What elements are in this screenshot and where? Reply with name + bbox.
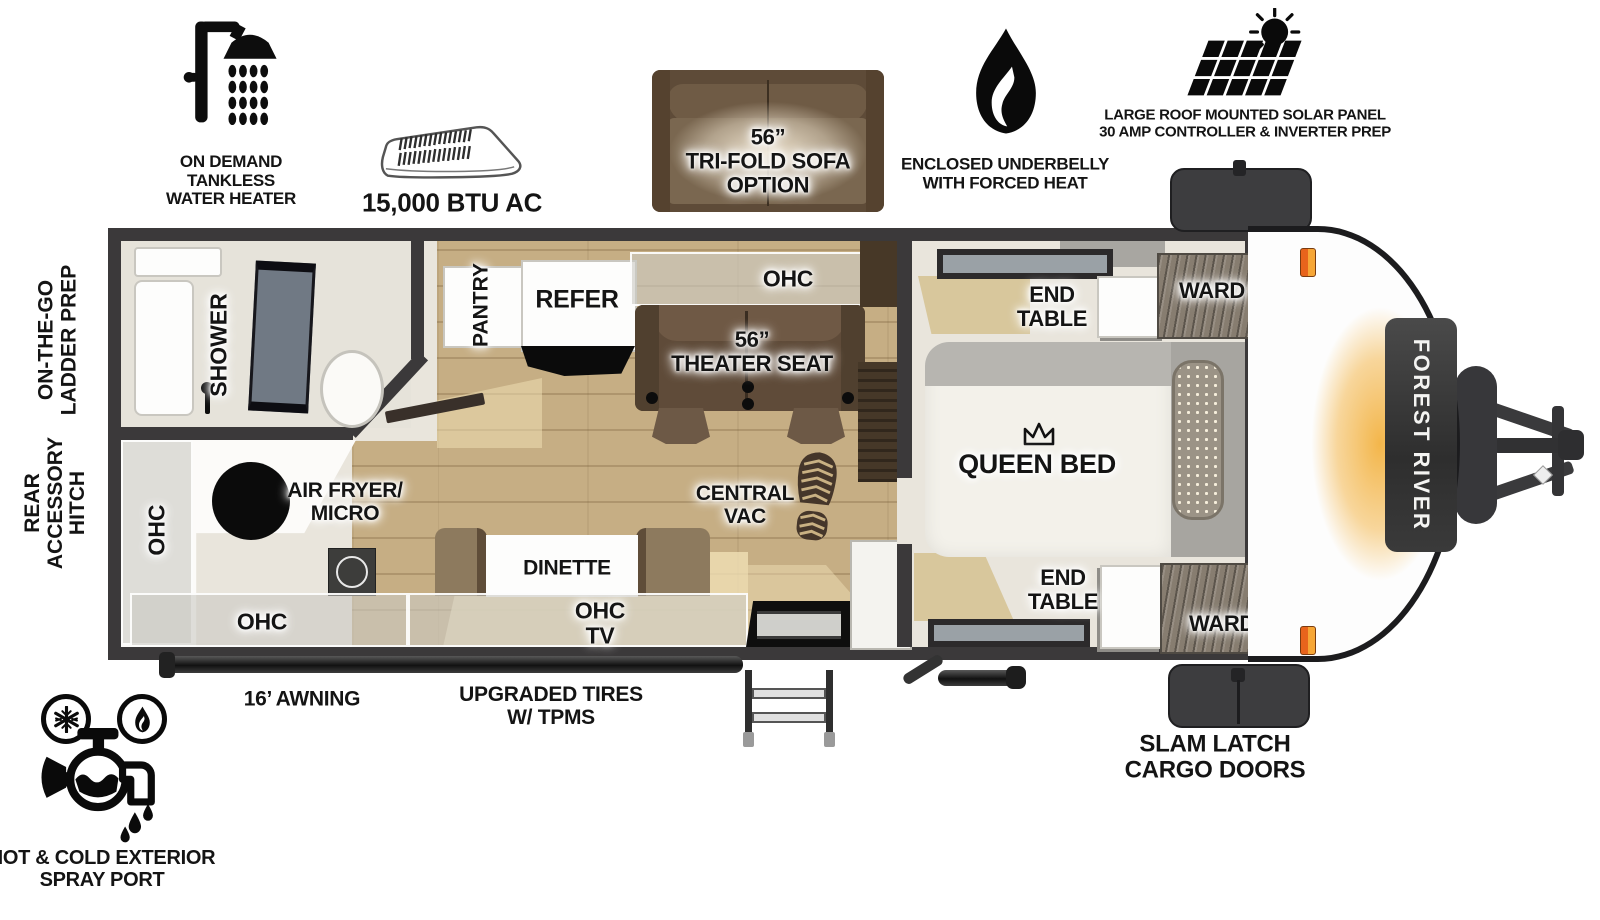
entry-steps <box>743 670 835 750</box>
bedroom-door-opening <box>897 478 912 544</box>
refer-label: REFER <box>535 286 618 314</box>
awning-label: 16’ AWNING <box>244 687 360 710</box>
ohc-left-label: OHC <box>145 504 170 555</box>
bedroom-wall <box>897 241 912 647</box>
bath-shelf <box>134 247 222 277</box>
cooktop-burner <box>336 556 368 588</box>
spray-port-label: HOT & COLD EXTERIOR SPRAY PORT <box>0 847 215 891</box>
bedroom-shelf-top <box>918 276 1030 334</box>
grab-rail-bar <box>938 670 1016 686</box>
bed-blanket <box>925 342 1171 386</box>
bath-vanity <box>134 280 194 416</box>
toilet <box>320 350 384 428</box>
ac-label: 15,000 BTU AC <box>362 189 542 218</box>
trifold-sofa-label: 56” TRI-FOLD SOFA OPTION <box>686 126 851 199</box>
theater-label: 56” THEATER SEAT <box>671 328 833 376</box>
dinette-label: DINETTE <box>523 556 611 579</box>
end-table-bottom-label: END TABLE <box>1028 566 1098 614</box>
ward-bottom <box>1160 563 1262 654</box>
bedroom-window-top <box>937 249 1113 279</box>
cargo-door-top-handle <box>1233 160 1246 176</box>
ohc-tv-label: OHC TV <box>575 599 625 650</box>
ohc-top-cabinet <box>630 252 888 306</box>
end-table-top <box>1097 276 1159 338</box>
dinette-bench-right <box>636 528 710 596</box>
dinette-bench-left <box>435 528 487 596</box>
cargo-doors-label: SLAM LATCH CARGO DOORS <box>1125 732 1306 785</box>
ward-bottom-label: WARD <box>1189 612 1255 636</box>
entry-inner-step <box>757 611 841 639</box>
underbelly-feature <box>963 25 1049 137</box>
water-heater-label: ON DEMAND TANKLESS WATER HEATER <box>166 153 296 209</box>
bedroom-window-bottom <box>928 619 1090 647</box>
bed-bolster <box>1172 360 1224 520</box>
ohc-top-label: OHC <box>763 266 813 291</box>
cargo-door-top <box>1170 168 1312 232</box>
forest-river-logo: FOREST RIVER <box>1409 339 1433 532</box>
hitch-jack-post <box>1455 366 1497 524</box>
ac-unit-icon <box>378 120 526 184</box>
tires-label: UPGRADED TIRES W/ TPMS <box>459 683 643 729</box>
bathroom-right-wall <box>411 241 424 359</box>
end-table-bottom <box>1100 565 1162 649</box>
awning-rail <box>163 656 743 673</box>
shower-icon <box>180 18 290 133</box>
pantry-label: PANTRY <box>471 263 494 347</box>
theater-cupholder-3 <box>742 398 754 410</box>
side-cabinet <box>858 362 900 482</box>
central-vac-label: CENTRAL VAC <box>696 482 794 528</box>
kitchen-sink <box>212 462 290 540</box>
bathroom-bottom-wall <box>121 427 353 440</box>
flame-icon <box>963 25 1049 137</box>
underbelly-label: ENCLOSED UNDERBELLY WITH FORCED HEAT <box>901 155 1109 192</box>
solar-feature <box>1168 8 1318 104</box>
theater-footrest-right <box>787 408 845 444</box>
theater-cupholder-4 <box>842 392 854 404</box>
side-cabinet-top <box>860 241 898 307</box>
air-fryer-label: AIR FRYER/ MICRO <box>287 479 402 525</box>
awning-end-cap <box>159 652 175 678</box>
cargo-door-bottom-latch-line <box>1237 680 1240 724</box>
solar-panel-icon <box>1168 8 1318 104</box>
ward-top-label: WARD <box>1179 279 1245 303</box>
shower-label: SHOWER <box>207 293 232 397</box>
crown-icon <box>1022 420 1056 448</box>
solar-label: LARGE ROOF MOUNTED SOLAR PANEL 30 AMP CO… <box>1099 108 1391 141</box>
water-heater-feature <box>180 18 290 133</box>
ohc-bottom-label: OHC <box>237 609 287 634</box>
ladder-prep-label: ON-THE-GO LADDER PREP <box>35 265 80 416</box>
marker-light-bottom <box>1300 626 1316 655</box>
faucet-icon <box>34 726 168 844</box>
spray-port-faucet <box>34 726 168 844</box>
theater-footrest-left <box>652 408 710 444</box>
theater-cupholder-1 <box>646 392 658 404</box>
ac-feature <box>378 120 526 184</box>
end-table-top-label: END TABLE <box>1017 283 1087 331</box>
marker-light-top <box>1300 248 1316 277</box>
queen-bed-label: QUEEN BED <box>958 450 1116 480</box>
hitch-coupler <box>1558 430 1584 460</box>
grab-rail-cap <box>1006 666 1026 689</box>
rear-hitch-label: REAR ACCESSORY HITCH <box>22 437 90 569</box>
theater-cupholder-2 <box>742 381 754 393</box>
shower-glass <box>248 261 316 414</box>
hitch-tongue-bar <box>1492 438 1564 453</box>
